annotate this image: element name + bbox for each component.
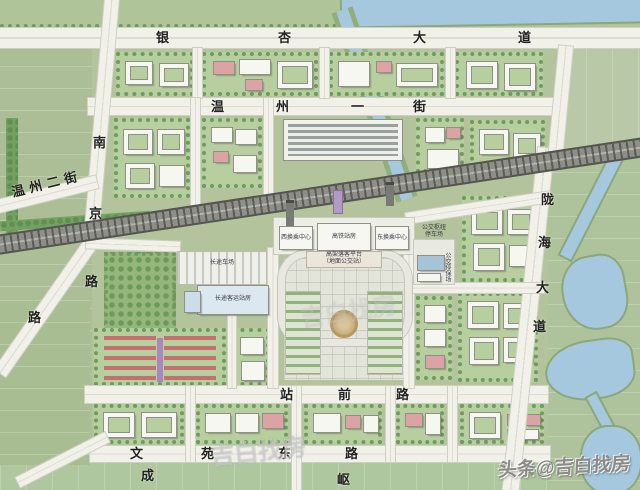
- road-horizontal-east-mid: [408, 283, 544, 293]
- building: [425, 306, 445, 322]
- coach-parking-label: 长途车场: [196, 260, 248, 267]
- road-label-yinxing-3: 大: [413, 31, 426, 45]
- pink-building: [526, 415, 540, 425]
- platform-label-line2: （地面公交站）: [306, 259, 382, 266]
- road-label-qu: 岖: [337, 473, 350, 487]
- courtyard-building: [467, 62, 497, 88]
- depot-shed-rows: [284, 120, 402, 160]
- road-label-nanjing-extra: 路: [28, 311, 41, 325]
- city-block: [304, 404, 382, 444]
- building: [425, 330, 445, 346]
- building: [241, 338, 263, 354]
- courtyard-building: [126, 164, 154, 188]
- building: [426, 414, 440, 434]
- city-block: [232, 328, 270, 386]
- courtyard-building: [126, 62, 152, 84]
- red-housing-rows: [104, 336, 156, 382]
- road-vertical-south-1: [186, 386, 195, 462]
- road-label-longhai-2: 海: [538, 236, 551, 250]
- building: [234, 156, 256, 172]
- east-transfer-label: 东换乘中心: [375, 235, 409, 242]
- pink-building: [346, 416, 360, 428]
- road-label-wenyuan-4: 路: [345, 447, 358, 461]
- city-block: [116, 52, 194, 96]
- pink-building: [246, 80, 262, 90]
- road-label-wenzhou1-3: 一: [351, 100, 364, 114]
- shed-bars: [288, 124, 398, 156]
- tree-row: [6, 118, 18, 236]
- coach-terminal-wing: [185, 292, 200, 312]
- road-vertical-mid-2: [264, 98, 273, 196]
- road-label-yinxing-2: 杏: [278, 31, 291, 45]
- coach-parking-lot: [178, 252, 266, 284]
- city-block: [329, 52, 444, 96]
- courtyard-building: [124, 130, 152, 154]
- road-label-longhai-1: 陇: [541, 193, 554, 207]
- pink-building: [377, 62, 391, 72]
- road-vertical-north-2: [320, 48, 329, 98]
- bus-depot-label: 公交停保场: [443, 248, 450, 286]
- courtyard-building: [104, 413, 134, 437]
- building: [236, 414, 258, 432]
- river-north: [340, 0, 640, 29]
- road-vertical-mid-1: [191, 98, 200, 210]
- building: [236, 130, 256, 144]
- building: [314, 414, 340, 432]
- city-block: [460, 404, 544, 444]
- building: [212, 128, 232, 142]
- courtyard-building: [470, 413, 500, 438]
- road-label-nanjing-3: 路: [85, 275, 98, 289]
- city-block: [202, 118, 262, 188]
- pink-building: [214, 152, 228, 162]
- city-block: [114, 118, 190, 198]
- road-wenyuan-east: [90, 446, 550, 462]
- road-vertical-north-1: [193, 48, 202, 98]
- master-plan-map: 长途车场 长途客运站房 西换乘中心 高铁站房 东换乘中心 高架落客平台 （地面公…: [0, 0, 640, 490]
- courtyard-building: [397, 64, 437, 86]
- courtyard-building: [505, 64, 535, 90]
- building: [364, 416, 378, 432]
- pink-building: [447, 128, 460, 138]
- building: [206, 414, 230, 432]
- road-label-nanjing-2: 京: [89, 207, 102, 221]
- courtyard-building: [160, 64, 188, 86]
- pink-building: [263, 414, 283, 428]
- courtyard-building: [468, 302, 498, 328]
- city-block: [396, 404, 444, 444]
- bus-depot-building: [418, 256, 444, 270]
- road-vertical-north-3: [446, 48, 455, 98]
- field-patch: [0, 0, 345, 28]
- road-label-yinxing-4: 道: [518, 31, 531, 45]
- building: [426, 128, 444, 142]
- road-label-cheng: 成: [141, 469, 154, 483]
- bus-hub-label-line1: 公交枢纽: [412, 225, 456, 232]
- pink-building: [406, 414, 422, 426]
- road-zhanqian: [85, 386, 548, 403]
- building: [242, 362, 264, 380]
- pink-building: [426, 356, 444, 368]
- red-housing-rows: [164, 336, 216, 382]
- hsr-station-label: 高铁站房: [318, 234, 370, 241]
- city-block: [202, 52, 318, 96]
- road-vertical-south-4: [448, 386, 457, 462]
- coach-terminal-label: 长途客运站房: [200, 296, 266, 303]
- building: [418, 274, 440, 281]
- road-vertical-residential: [228, 316, 236, 388]
- courtyard-building: [480, 130, 508, 154]
- bus-hub-label-line2: 停车场: [412, 232, 456, 239]
- road-label-nanjing-1: 南: [93, 136, 106, 150]
- road-label-longhai-4: 道: [533, 320, 546, 334]
- road-label-wenzhou1-1: 温: [211, 100, 224, 114]
- city-block: [416, 296, 452, 380]
- station-signboard: [333, 190, 343, 214]
- residential-block: [94, 328, 226, 386]
- building: [160, 166, 184, 186]
- road-label-yinxing-1: 银: [156, 31, 169, 45]
- courtyard-building: [142, 413, 176, 437]
- platform-label-line1: 高架落客平台: [306, 252, 382, 259]
- road-vertical-west-of-plaza: [268, 248, 278, 388]
- field-patch: [0, 300, 90, 465]
- road-station-frontage-west: [86, 238, 180, 251]
- west-transfer-label: 西换乘中心: [279, 235, 313, 242]
- building: [240, 60, 270, 74]
- catenary-pylon: [386, 182, 394, 206]
- road-label-wenzhou1-4: 街: [413, 100, 426, 114]
- catenary-pylon: [286, 200, 294, 226]
- road-label-zhanqian-2: 前: [338, 388, 351, 402]
- road-label-zhanqian-3: 路: [396, 388, 409, 402]
- road-label-longhai-3: 大: [536, 281, 549, 295]
- purple-accent: [157, 338, 163, 382]
- pink-building: [214, 62, 234, 74]
- road-wenzhou-1st: [88, 98, 558, 115]
- courtyard-building: [278, 62, 312, 88]
- courtyard-building: [474, 244, 504, 270]
- courtyard-building: [158, 130, 184, 154]
- building: [339, 62, 369, 86]
- road-label-wenzhou1-2: 州: [276, 100, 289, 114]
- road-label-zhanqian-1: 站: [280, 388, 293, 402]
- city-block: [455, 52, 543, 96]
- road-yinxing-avenue: [0, 28, 640, 48]
- orchard-block: [104, 252, 176, 332]
- road-label-wenyuan-1: 文: [130, 447, 143, 461]
- courtyard-building: [470, 338, 498, 364]
- road-vertical-south-3: [386, 386, 395, 462]
